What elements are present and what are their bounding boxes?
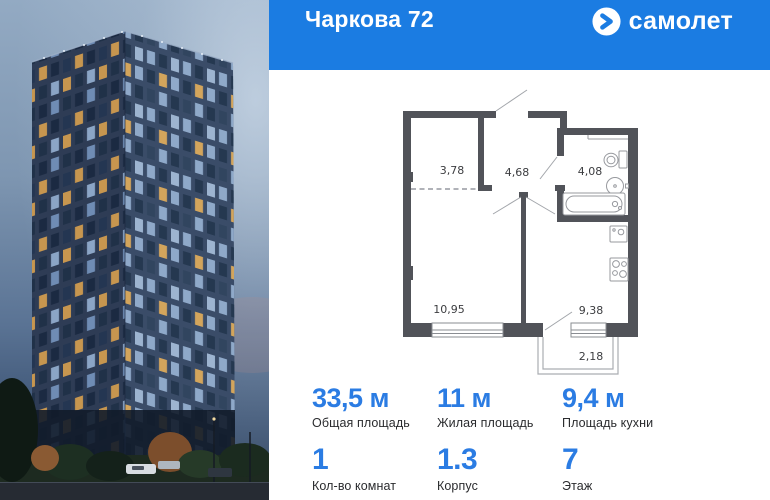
stat-rooms-count-value: 1 xyxy=(312,445,437,475)
stat-floor-value: 7 xyxy=(562,445,687,475)
stat-floor-label: Этаж xyxy=(562,479,687,493)
stat-rooms-count-label: Кол-во комнат xyxy=(312,479,437,493)
listing-card: Чаркова 72 самолет xyxy=(0,0,770,500)
room-label-balcony: 2,18 xyxy=(579,350,604,363)
brand-wordmark: самолет xyxy=(629,7,733,36)
samolet-arrow-icon xyxy=(592,7,621,36)
stat-kitchen-area: 9,4 м Площадь кухни xyxy=(562,385,687,430)
stat-living-area-value: 11 м xyxy=(437,385,562,412)
stat-building: 1.3 Корпус xyxy=(437,445,562,493)
brand-logo: самолет xyxy=(592,7,733,36)
info-panel: Чаркова 72 самолет xyxy=(269,0,770,500)
building-photo xyxy=(0,0,269,500)
stat-rooms-count: 1 Кол-во комнат xyxy=(312,445,437,493)
toilet-icon xyxy=(619,151,627,168)
stat-floor: 7 Этаж xyxy=(562,445,687,493)
stat-kitchen-area-value: 9,4 м xyxy=(562,385,687,412)
stat-total-area: 33,5 м Общая площадь xyxy=(312,385,437,430)
stat-building-value: 1.3 xyxy=(437,445,562,475)
stat-total-area-value: 33,5 м xyxy=(312,385,437,412)
room-label-living: 10,95 xyxy=(433,303,465,316)
tower-illustration xyxy=(32,31,235,479)
stat-total-area-label: Общая площадь xyxy=(312,416,437,430)
stat-living-area: 11 м Жилая площадь xyxy=(437,385,562,430)
room-label-closet: 3,78 xyxy=(440,164,465,177)
stat-kitchen-area-label: Площадь кухни xyxy=(562,416,687,430)
room-label-bath: 4,08 xyxy=(578,165,603,178)
kitchen-fixtures xyxy=(610,226,628,281)
floorplan: 3,78 4,68 4,08 10,95 9,38 2,18 xyxy=(398,84,648,384)
header-bar: Чаркова 72 самолет xyxy=(269,0,770,70)
page-title: Чаркова 72 xyxy=(305,6,434,33)
stat-living-area-label: Жилая площадь xyxy=(437,416,562,430)
room-label-hall: 4,68 xyxy=(505,166,530,179)
stat-building-label: Корпус xyxy=(437,479,562,493)
room-label-kitchen: 9,38 xyxy=(579,304,604,317)
